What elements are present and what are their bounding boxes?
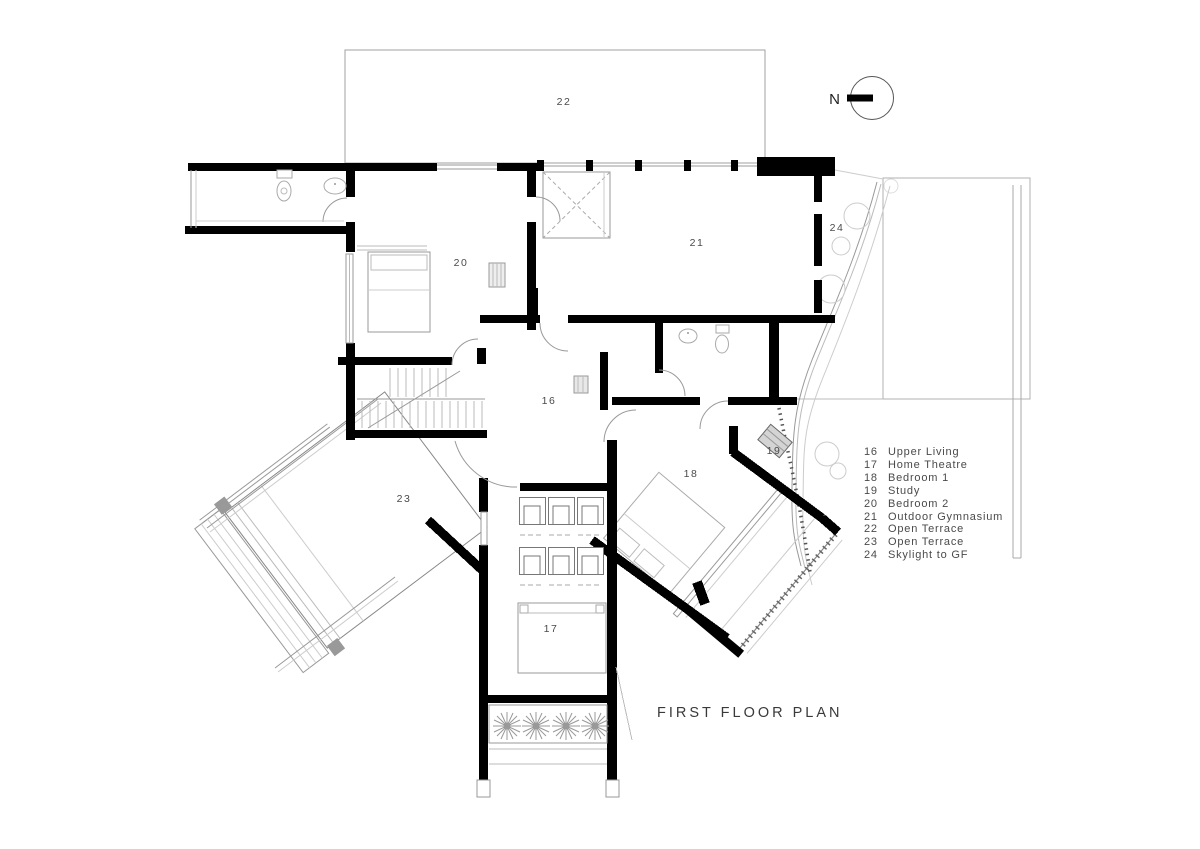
- theatre-screen: [518, 603, 606, 673]
- skylight-grid: [543, 172, 610, 238]
- legend-item: 16Upper Living: [864, 446, 1003, 459]
- bathroom2-fixtures: [679, 325, 729, 353]
- bed: [604, 472, 725, 593]
- room-label-17: 17: [544, 623, 559, 635]
- north-pointer-icon: [847, 95, 873, 102]
- toilet-icon: [277, 181, 291, 201]
- door-swings: [323, 197, 728, 487]
- legend-item: 22Open Terrace: [864, 523, 1003, 536]
- room-legend: 16Upper Living 17Home Theatre 18Bedroom …: [864, 446, 1003, 562]
- legend-item: 18Bedroom 1: [864, 472, 1003, 485]
- bed: [368, 252, 430, 332]
- gym-colonnade: [537, 160, 757, 171]
- sink-icon: [324, 178, 346, 194]
- room-label-18: 18: [684, 468, 699, 480]
- planter-box: [489, 705, 609, 764]
- floor-plan-drawing: N 16 17 18 19 20 21 22 23 24: [0, 0, 1200, 849]
- windows: [191, 165, 497, 545]
- window: [481, 512, 487, 545]
- room-label-24: 24: [830, 222, 845, 234]
- floor-plan-sheet: N 16 17 18 19 20 21 22 23 24 16Upper Liv…: [0, 0, 1200, 849]
- legend-item: 24Skylight to GF: [864, 549, 1003, 562]
- legend-item: 19Study: [864, 485, 1003, 498]
- sink-icon: [679, 329, 697, 343]
- legend-item: 21Outdoor Gymnasium: [864, 511, 1003, 524]
- room-label-20: 20: [454, 257, 469, 269]
- legend-item: 17Home Theatre: [864, 459, 1003, 472]
- upper-living-basin: [574, 376, 588, 393]
- legend-item: 23Open Terrace: [864, 536, 1003, 549]
- room-label-21: 21: [690, 237, 705, 249]
- bathroom1-fixtures: [196, 170, 346, 221]
- toilet-tank: [277, 170, 292, 178]
- room-label-19: 19: [767, 445, 782, 457]
- toilet-icon: [716, 335, 729, 353]
- legend-item: 20Bedroom 2: [864, 498, 1003, 511]
- room-label-23: 23: [397, 493, 412, 505]
- pergola-post: [327, 638, 345, 656]
- theatre-seats: [520, 498, 604, 586]
- room-label-22: 22: [557, 96, 572, 108]
- column-footings: [477, 780, 619, 797]
- drawing-title: FIRST FLOOR PLAN: [657, 705, 843, 721]
- open-terrace-22-outline: [345, 50, 765, 163]
- north-label: N: [829, 91, 841, 108]
- toilet-tank: [716, 325, 729, 333]
- room-label-16: 16: [542, 395, 557, 407]
- north-arrow: N: [829, 77, 893, 120]
